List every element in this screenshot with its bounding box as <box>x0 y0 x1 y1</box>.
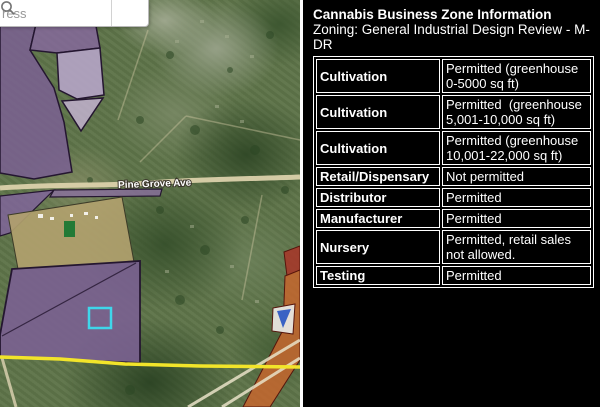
table-row: Cultivation Permitted (greenhouse 10,001… <box>316 131 591 165</box>
panel-content: Cannabis Business Zone Information Zonin… <box>303 0 600 407</box>
permission-cell: Permitted (greenhouse 0-5000 sq ft) <box>442 59 591 93</box>
residential-texture <box>165 20 259 303</box>
business-type-cell: Manufacturer <box>316 209 440 228</box>
table-row: Distributor Permitted <box>316 188 591 207</box>
business-type-cell: Nursery <box>316 230 440 264</box>
purple-zone-topleft <box>0 24 104 179</box>
table-row: Retail/Dispensary Not permitted <box>316 167 591 186</box>
permission-cell: Permitted (greenhouse 10,001-22,000 sq f… <box>442 131 591 165</box>
business-type-cell: Distributor <box>316 188 440 207</box>
zone-permission-table: Cultivation Permitted (greenhouse 0-5000… <box>313 56 594 288</box>
business-type-cell: Cultivation <box>316 95 440 129</box>
minor-roads <box>118 30 300 300</box>
business-type-cell: Retail/Dispensary <box>316 167 440 186</box>
table-row: Nursery Permitted, retail sales not allo… <box>316 230 591 264</box>
orange-zone-bottomright <box>243 246 300 407</box>
permission-cell: Permitted, retail sales not allowed. <box>442 230 591 264</box>
road-label: Pine Grove Ave <box>118 178 192 192</box>
zoning-description: Zoning: General Industrial Design Review… <box>313 22 594 52</box>
table-row: Testing Permitted <box>316 266 591 285</box>
permission-cell: Permitted <box>442 188 591 207</box>
satellite-map[interactable]: Pine Grove Ave <box>0 0 300 407</box>
table-row: Cultivation Permitted (greenhouse 5,001-… <box>316 95 591 129</box>
permission-cell: Permitted <box>442 209 591 228</box>
zone-info-panel: Cannabis Business Zone Information Zonin… <box>300 0 600 407</box>
permission-cell: Permitted (greenhouse 5,001-10,000 sq ft… <box>442 95 591 129</box>
permission-cell: Permitted <box>442 266 591 285</box>
panel-title: Cannabis Business Zone Information <box>313 7 594 22</box>
search-bar <box>0 0 149 27</box>
business-type-cell: Testing <box>316 266 440 285</box>
app-window: Pine Grove Ave Cannabis Business Zone In… <box>0 0 600 407</box>
search-button[interactable] <box>111 0 148 26</box>
map-overlay: Pine Grove Ave <box>0 0 300 407</box>
permission-cell: Not permitted <box>442 167 591 186</box>
search-input[interactable] <box>0 1 111 25</box>
magnifier-icon <box>0 0 16 16</box>
purple-zone-bottomleft <box>0 261 140 363</box>
table-row: Manufacturer Permitted <box>316 209 591 228</box>
zone-boundary-line <box>0 357 300 367</box>
business-type-cell: Cultivation <box>316 59 440 93</box>
table-row: Cultivation Permitted (greenhouse 0-5000… <box>316 59 591 93</box>
business-type-cell: Cultivation <box>316 131 440 165</box>
